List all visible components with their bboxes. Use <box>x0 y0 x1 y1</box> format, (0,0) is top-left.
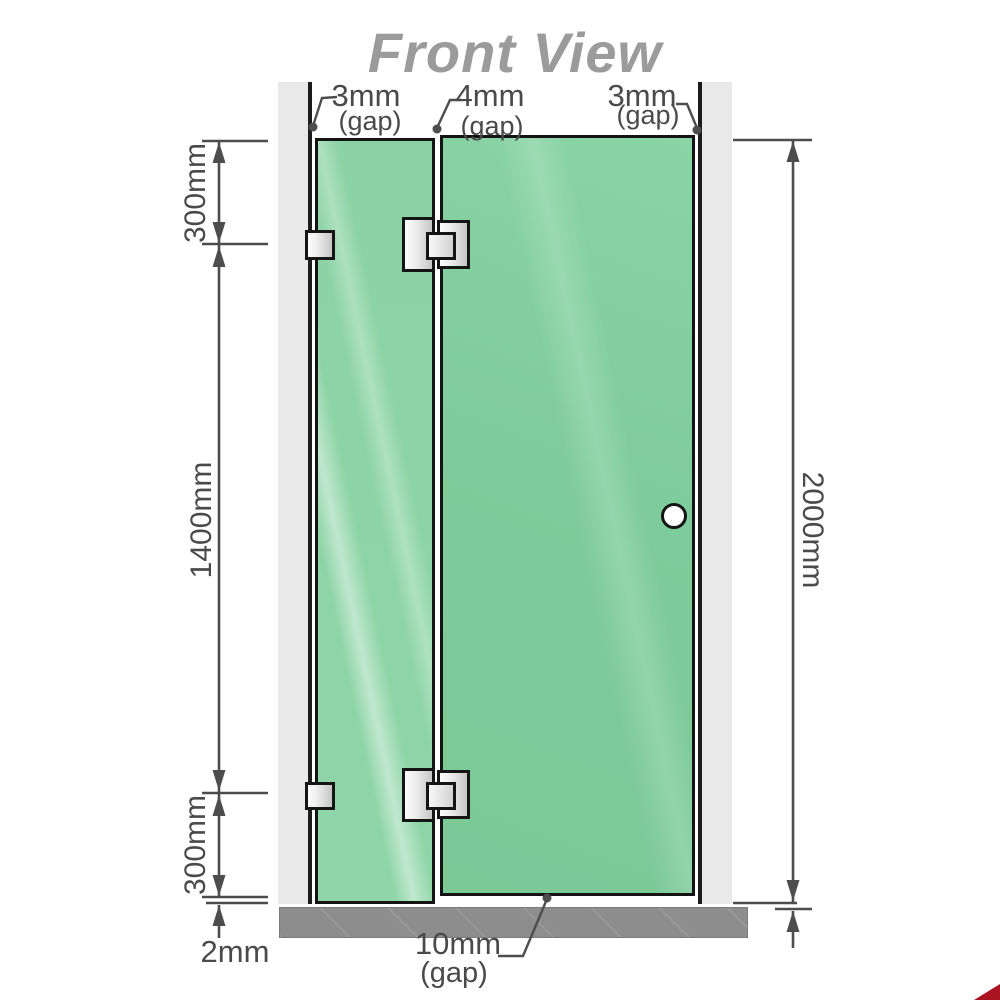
dimension-label-2000: 2000mm <box>797 470 827 590</box>
page-title: Front View <box>340 20 690 85</box>
floor-gap-label: 2mm <box>190 936 280 967</box>
wall-bracket-bottom <box>305 782 335 810</box>
hinge-bottom-knuckle <box>426 782 456 810</box>
door-gap-label-note: (gap) <box>404 959 504 988</box>
gap-label-right-note: (gap) <box>608 102 688 129</box>
hinge-top-knuckle <box>426 232 456 260</box>
corner-logo-sliver <box>974 984 1000 1000</box>
door-handle-knob <box>661 503 687 529</box>
dimension-arrowheads <box>213 141 800 932</box>
door-gap-label-value: 10mm <box>408 928 508 959</box>
wall-bracket-top <box>305 230 335 260</box>
gap-label-left-note: (gap) <box>330 108 410 135</box>
dimension-label-300-top: 300mm <box>181 143 211 243</box>
dimension-label-1400: 1400mm <box>187 460 217 580</box>
leader-dots <box>309 123 702 903</box>
dimension-label-300-bottom: 300mm <box>181 795 211 895</box>
gap-label-mid-value: 4mm <box>450 80 530 111</box>
dimension-annotations <box>0 0 1000 1000</box>
front-view-diagram: Front View <box>0 0 1000 1000</box>
gap-label-mid-note: (gap) <box>452 113 532 140</box>
leader-lines <box>313 97 697 956</box>
